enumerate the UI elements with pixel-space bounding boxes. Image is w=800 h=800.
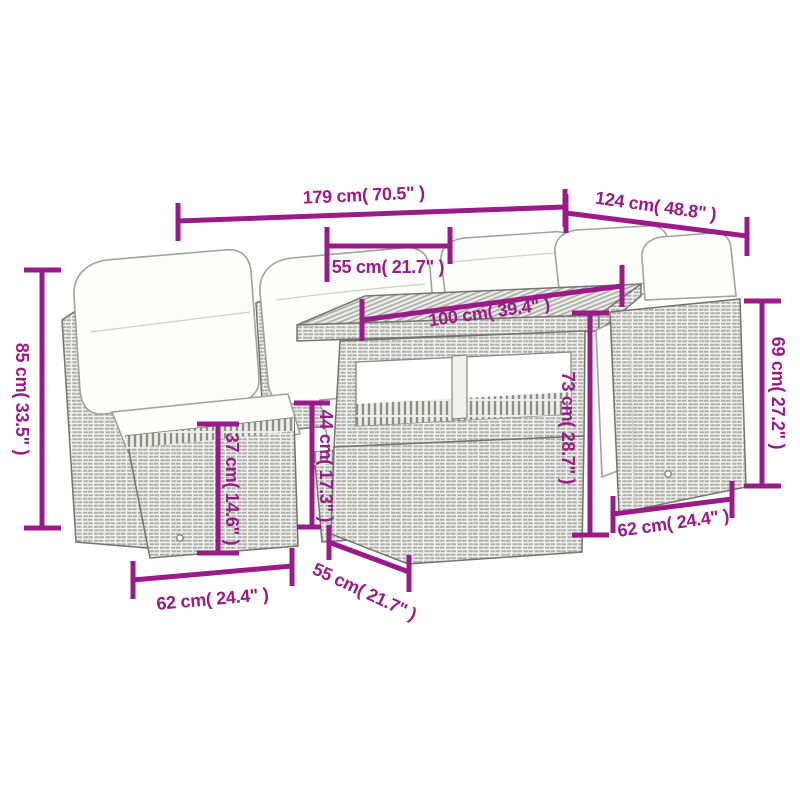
dimension-label: 73 cm( 28.7" ) [558,372,578,485]
dimension-label: 55 cm( 21.7" ) [332,257,445,277]
dimension-diagram-page: 179 cm( 70.5" ) 124 cm( 48.8" ) 85 cm( 3… [0,0,800,800]
dimension-total-width: 179 cm( 70.5" ) [178,182,565,241]
drain-hole [177,535,183,541]
dimension-label: 85 cm( 33.5" ) [12,343,32,456]
dimension-label: 69 cm( 27.2" ) [768,337,788,450]
back-cushion [642,233,736,300]
shelf-divider [452,355,467,419]
dimension-label: 37 cm( 14.6" ) [222,433,242,546]
back-cushion [74,250,259,414]
drain-hole [665,471,671,477]
rattan-side-panel [610,299,746,513]
furniture-dimension-diagram: 179 cm( 70.5" ) 124 cm( 48.8" ) 85 cm( 3… [0,0,800,800]
dimension-label: 44 cm( 17.3" ) [316,410,336,523]
dimension-label: 62 cm( 24.4" ) [156,584,270,614]
table-body-lower [331,436,584,564]
dimension-backrest-height: 85 cm( 33.5" ) [12,270,61,528]
dimension-label: 179 cm( 70.5" ) [302,182,425,207]
dimension-side-back-height: 69 cm( 27.2" ) [744,301,788,486]
